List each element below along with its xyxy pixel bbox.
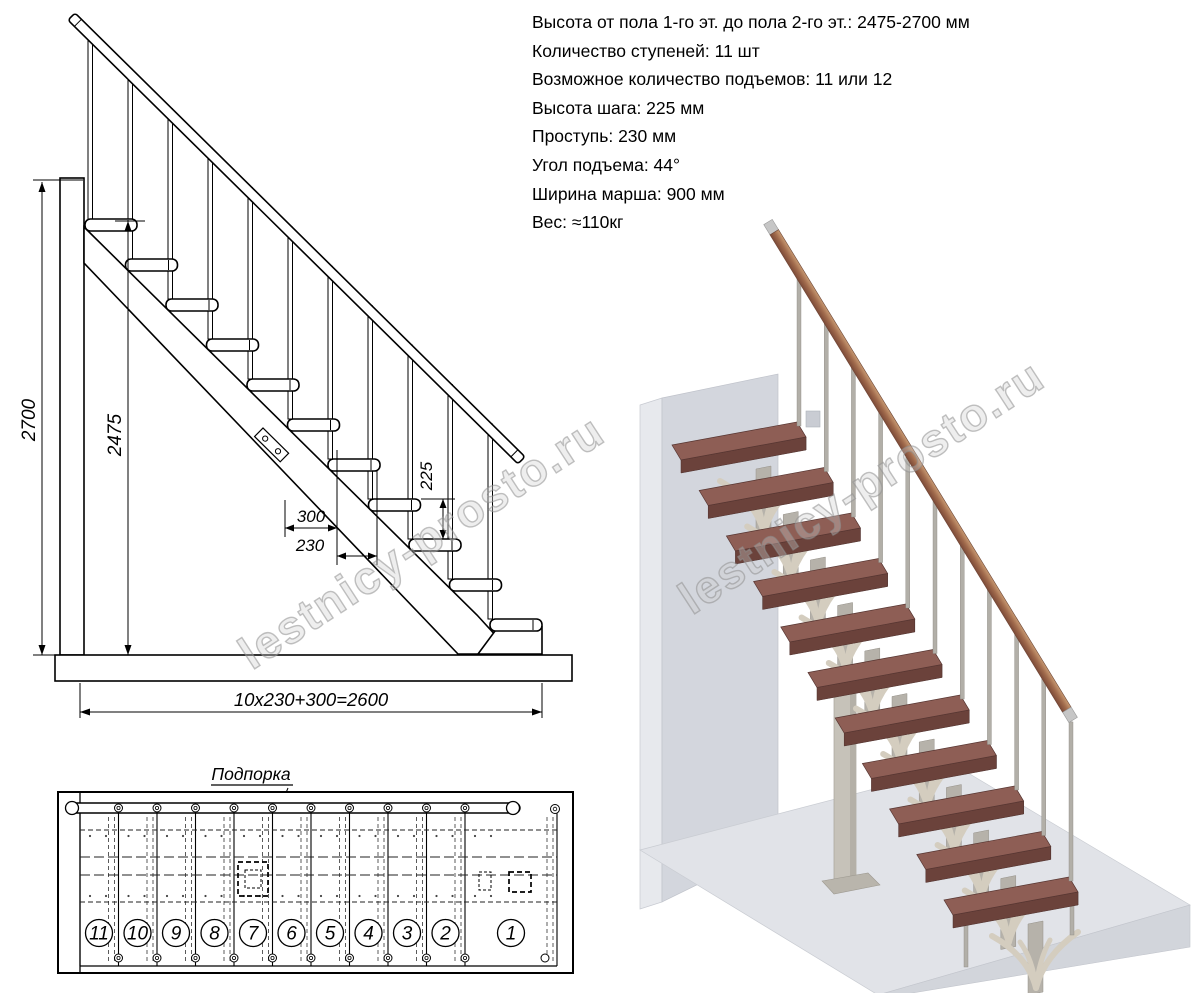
baluster (933, 500, 937, 653)
bolt-mark (451, 895, 453, 897)
rail-bolt (551, 805, 560, 814)
bolt-mark (297, 895, 299, 897)
bolt-mark (435, 895, 437, 897)
spec-line: Угол подъема: 44° (532, 151, 1132, 180)
staircase-drawing-canvas: Высота от пола 1-го эт. до пола 2-го эт.… (0, 0, 1191, 993)
rail-end-post (507, 802, 520, 815)
tread (166, 299, 218, 311)
baluster (1069, 722, 1073, 881)
rail-bolt (423, 804, 431, 812)
bolt-mark (435, 835, 437, 837)
bolt-mark (374, 895, 376, 897)
rail-bolt (115, 804, 123, 812)
bolt-mark (451, 835, 453, 837)
spec-line: Количество ступеней: 11 шт (532, 37, 1132, 66)
step-number: 4 (363, 924, 374, 945)
bolt-mark (281, 835, 283, 837)
bolt-mark (397, 835, 399, 837)
rail-bolt (423, 954, 431, 962)
bolt-mark (358, 835, 360, 837)
bolt-mark (89, 835, 91, 837)
bolt-mark (182, 895, 184, 897)
bolt-mark (204, 835, 206, 837)
wall-mount-plate (806, 411, 820, 427)
plan-drawing: Подпорка 1110987654321 (45, 762, 585, 992)
rail-bolt (230, 804, 238, 812)
specifications: Высота от пола 1-го эт. до пола 2-го эт.… (532, 8, 1132, 237)
baluster (960, 545, 964, 699)
step-number: 2 (439, 924, 451, 945)
step-number: 10 (127, 924, 149, 945)
step-number: 5 (325, 924, 336, 945)
spec-line: Высота шага: 225 мм (532, 94, 1132, 123)
rail-bolt (346, 804, 354, 812)
bolt-mark (336, 895, 338, 897)
step-number: 6 (286, 924, 297, 945)
bolt-mark (474, 895, 476, 897)
bolt-mark (413, 835, 415, 837)
rail-bolt (384, 954, 392, 962)
step-number: 3 (402, 924, 413, 945)
elevation-handrail (68, 13, 525, 464)
rail-bolt (115, 954, 123, 962)
tread (450, 579, 502, 591)
support-label: Подпорка (211, 764, 290, 784)
bolt-mark (374, 835, 376, 837)
bolt-mark (127, 835, 129, 837)
baluster (824, 323, 828, 472)
baluster (1042, 678, 1046, 836)
wall-post (60, 178, 84, 655)
dim-total-run: 10x230+300=2600 (80, 683, 542, 718)
rail-end-post (66, 802, 79, 815)
baluster (987, 589, 991, 745)
baluster (1015, 633, 1019, 790)
dim-label-2475: 2475 (105, 413, 126, 457)
tread (288, 419, 340, 431)
bolt-mark (89, 895, 91, 897)
rail-bolt (269, 804, 277, 812)
bolt-mark (127, 895, 129, 897)
dim-label-230: 230 (295, 536, 325, 555)
step-number: 8 (209, 924, 220, 945)
bolt-mark (220, 835, 222, 837)
rail-bolt (192, 954, 200, 962)
step-number: 7 (248, 924, 260, 945)
dim-label-2700: 2700 (19, 398, 40, 442)
bolt-mark (105, 835, 107, 837)
bolt-mark (297, 835, 299, 837)
baluster (88, 30, 93, 219)
bolt-mark (336, 835, 338, 837)
rail-bolt (384, 804, 392, 812)
step-number: 9 (171, 924, 182, 945)
bolt-mark (243, 835, 245, 837)
rail-bolt (307, 954, 315, 962)
rail-bolt (461, 954, 469, 962)
tread (207, 339, 259, 351)
bolt-mark (490, 835, 492, 837)
spec-line: Высота от пола 1-го эт. до пола 2-го эт.… (532, 8, 1132, 37)
bolt-mark (182, 835, 184, 837)
bolt-mark (397, 895, 399, 897)
rail-bolt (153, 954, 161, 962)
tread (490, 619, 542, 631)
dim-label-total-run: 10x230+300=2600 (234, 689, 389, 710)
tread (247, 379, 299, 391)
bolt-mark (105, 895, 107, 897)
rail-bolt (541, 954, 549, 962)
bolt-mark (166, 895, 168, 897)
bolt-mark (281, 895, 283, 897)
spec-line: Проступь: 230 мм (532, 122, 1132, 151)
rail-bolt (269, 954, 277, 962)
bolt-mark (320, 835, 322, 837)
rail-bolt (461, 804, 469, 812)
dim-label-300: 300 (297, 507, 326, 526)
rail-bolt (230, 954, 238, 962)
rail-bolt (307, 804, 315, 812)
iso-render: lestnicy-prosto.ru (628, 205, 1191, 993)
rail-bolt (192, 804, 200, 812)
rail-bolt (153, 804, 161, 812)
spec-line: Возможное количество подъемов: 11 или 12 (532, 65, 1132, 94)
bolt-mark (220, 895, 222, 897)
bolt-mark (166, 835, 168, 837)
step-number: 11 (89, 924, 109, 945)
bolt-mark (204, 895, 206, 897)
tread-leg (1070, 905, 1074, 935)
floor-slab (55, 655, 572, 681)
tread (328, 459, 380, 471)
step-number: 1 (506, 924, 517, 945)
bolt-mark (490, 895, 492, 897)
tread (369, 499, 421, 511)
bolt-mark (413, 895, 415, 897)
spec-line: Ширина марша: 900 мм (532, 180, 1132, 209)
dim-label-225: 225 (417, 461, 436, 491)
bolt-mark (143, 835, 145, 837)
bolt-mark (143, 895, 145, 897)
bolt-mark (474, 835, 476, 837)
elevation-drawing: 2700 2475 225 300 (25, 5, 585, 760)
bolt-mark (320, 895, 322, 897)
bolt-mark (358, 895, 360, 897)
rail-bolt (346, 954, 354, 962)
bolt-mark (259, 835, 261, 837)
tread (126, 259, 178, 271)
baluster (797, 279, 801, 426)
